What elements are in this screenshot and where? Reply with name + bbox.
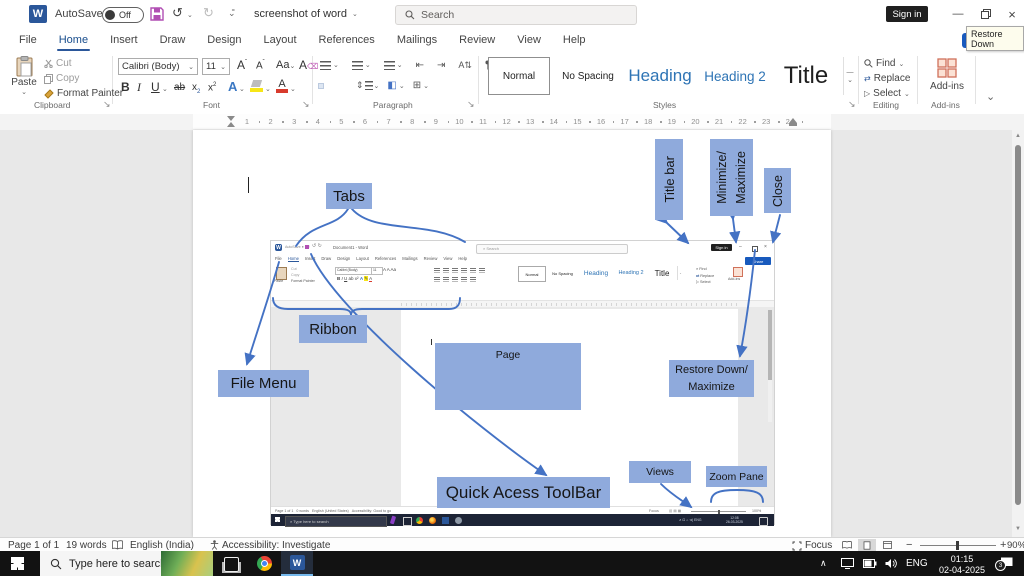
tab-help[interactable]: Help <box>552 30 597 52</box>
font-size-select[interactable]: 11⌄ <box>202 58 230 75</box>
addins-group-label: Add-ins <box>931 100 960 110</box>
indent-marker-right[interactable] <box>789 118 797 126</box>
scrollbar-thumb[interactable] <box>1015 145 1021 505</box>
taskbar-search-placeholder: Type here to search <box>69 558 166 570</box>
scroll-up-icon[interactable]: ▲ <box>1015 133 1021 139</box>
callout-title-bar[interactable]: Title bar <box>655 139 683 220</box>
notification-badge: 3 <box>995 560 1006 571</box>
word-count[interactable]: 19 words <box>66 540 107 551</box>
task-view-button[interactable] <box>224 557 239 572</box>
close-button[interactable]: × <box>1000 4 1024 24</box>
replace-icon: ⇄ <box>864 74 871 83</box>
tray-display-icon[interactable] <box>841 558 854 569</box>
mini-sign-in: Sign in <box>711 244 732 251</box>
mini-minimize-icon: – <box>739 244 742 250</box>
cut-button[interactable]: Cut <box>44 58 72 69</box>
highlight-chevron-icon[interactable]: ⌄ <box>265 85 271 93</box>
autosave-label: AutoSave <box>55 8 103 20</box>
tray-time: 01:15 <box>934 554 990 565</box>
sort-icon[interactable]: A⇅ <box>458 60 472 71</box>
tab-mailings[interactable]: Mailings <box>386 30 448 52</box>
format-painter-icon <box>44 89 54 99</box>
search-icon <box>405 10 415 20</box>
tray-chevron-icon[interactable]: ∧ <box>820 558 827 569</box>
font-color-chevron-icon[interactable]: ⌄ <box>290 85 296 93</box>
windows-taskbar: Type here to search W ∧ ENG 01:15 02-04-… <box>0 551 1024 576</box>
paste-button[interactable]: Paste ⌄ <box>8 56 40 100</box>
callout-quick-access[interactable]: Quick Acess ToolBar <box>437 477 610 508</box>
paragraph-row2: ⇕⌄ ◧⌄ ⊞⌄ <box>318 80 429 91</box>
underline-button[interactable]: U <box>151 80 160 94</box>
mini-tab-row: File Home InsertDraw DesignLayout Refere… <box>275 254 467 263</box>
font-family-select[interactable]: Calibri (Body)⌄ <box>118 58 198 75</box>
tab-layout[interactable]: Layout <box>253 30 308 52</box>
paragraph-row1: ⌄ ⌄ ⌄ ⇤ ⇥ A⇅ ¶ <box>320 59 491 71</box>
mini-taskbar: ⌕ Type here to search ∧ ⊡ ⌂ ⊲) ENG 12:08… <box>271 514 774 526</box>
document-area[interactable]: W AutoSave ● Off ↺ ↻ Document1 - Word ⌕ … <box>0 130 1024 537</box>
mini-doc-title: Document1 - Word <box>333 245 368 250</box>
title-chevron-icon[interactable]: ⌄ <box>352 10 358 18</box>
format-painter-button[interactable]: Format Painter <box>44 88 123 99</box>
subscript-button[interactable]: x2 <box>192 82 200 95</box>
redo-icon[interactable]: ↻ <box>203 5 214 21</box>
paragraph-group-label: Paragraph <box>373 100 413 110</box>
superscript-button[interactable]: x2 <box>208 82 216 93</box>
tab-insert[interactable]: Insert <box>99 30 149 52</box>
style-heading-2[interactable]: Heading 2 <box>700 57 770 95</box>
minimize-button[interactable]: — <box>944 4 972 24</box>
tab-draw[interactable]: Draw <box>149 30 197 52</box>
mini-close-icon: × <box>764 244 767 250</box>
mini-addins-icon <box>733 267 743 277</box>
toggle-knob <box>105 10 115 20</box>
callout-close[interactable]: Close <box>764 168 791 213</box>
shrink-font-icon[interactable]: Aˇ <box>256 60 265 71</box>
text-cursor <box>248 177 249 193</box>
proofing-book-icon[interactable] <box>112 540 123 550</box>
accessibility-icon <box>210 540 219 550</box>
decrease-indent-icon[interactable]: ⇤ <box>416 60 424 71</box>
title-bar: W AutoSave Off ↺ ⌄ ↻ ⌄̄ screenshot of wo… <box>0 0 1024 28</box>
mini-firefox-icon <box>429 517 436 524</box>
status-bar: Page 1 of 1 19 words English (India) Acc… <box>0 537 1024 552</box>
font-dialog-launcher-icon[interactable]: ↘ <box>302 99 310 110</box>
copy-icon <box>44 74 53 84</box>
tab-home[interactable]: Home <box>48 30 99 52</box>
callout-restore-down[interactable]: Restore Down/ Maximize <box>669 360 754 397</box>
chrome-icon[interactable] <box>257 556 272 571</box>
font-group-label: Font <box>203 100 220 110</box>
mini-gear-icon <box>455 517 462 524</box>
paste-icon <box>16 56 33 77</box>
mini-word-tile-icon <box>442 517 449 524</box>
document-title[interactable]: screenshot of word <box>254 8 347 20</box>
word-logo-icon: W <box>29 5 47 23</box>
word-taskbar-button[interactable]: W <box>281 551 313 576</box>
tray-battery-icon[interactable] <box>863 559 877 568</box>
mini-scrollbar <box>768 310 772 422</box>
editing-group-label: Editing <box>873 100 899 110</box>
accessibility-status[interactable]: Accessibility: Investigate <box>222 540 330 551</box>
align-left-icon[interactable] <box>318 83 324 89</box>
search-placeholder: Search <box>421 9 454 21</box>
search-input[interactable]: Search <box>395 5 637 25</box>
clipboard-dialog-launcher-icon[interactable]: ↘ <box>103 99 111 110</box>
taskbar-search-icon <box>50 558 62 570</box>
mini-undo-icon: ↺ ↻ <box>312 243 322 249</box>
mini-word-logo-icon: W <box>275 244 282 251</box>
find-button[interactable]: Find⌄ <box>864 58 904 69</box>
clear-formatting-icon[interactable]: A⌫ <box>299 58 318 72</box>
undo-icon[interactable]: ↺ <box>172 5 183 21</box>
tab-design[interactable]: Design <box>196 30 252 52</box>
styles-group-label: Styles <box>653 100 676 110</box>
collapse-ribbon-icon[interactable]: ⌄ <box>986 90 995 103</box>
text-effects-chevron-icon[interactable]: ⌄ <box>239 85 245 93</box>
web-layout-icon[interactable] <box>878 539 896 551</box>
increase-indent-icon[interactable]: ⇥ <box>437 60 445 71</box>
vertical-scrollbar[interactable]: ▲ ▼ <box>1012 130 1024 537</box>
customize-qat-icon[interactable]: ⌄̄ <box>228 8 236 19</box>
save-icon[interactable] <box>150 7 164 21</box>
tab-references[interactable]: References <box>308 30 386 52</box>
zoom-percentage[interactable]: 90% <box>1007 540 1024 551</box>
ruler-numbers: 123456789101112131415161718192021222324 <box>186 114 838 130</box>
callout-zoom-pane[interactable]: Zoom Pane <box>706 466 767 487</box>
find-icon <box>864 59 873 68</box>
add-ins-icon <box>937 58 957 78</box>
font-color-icon[interactable]: A <box>276 79 288 93</box>
change-case-icon[interactable]: Aa⌄ <box>276 59 295 71</box>
tray-volume-icon[interactable] <box>885 558 897 569</box>
start-button[interactable] <box>11 557 24 570</box>
ribbon-tab-row: File Home Insert Draw Design Layout Refe… <box>0 28 1024 52</box>
callout-ribbon[interactable]: Ribbon <box>299 315 367 343</box>
autosave-toggle[interactable]: Off <box>102 7 144 23</box>
focus-icon <box>792 541 802 551</box>
line-spacing-icon[interactable]: ⇕⌄ <box>356 80 379 91</box>
tab-view[interactable]: View <box>506 30 552 52</box>
mini-chrome-icon <box>416 517 423 524</box>
mini-ribbon-pin-icon <box>390 516 396 525</box>
sign-in-button[interactable]: Sign in <box>886 6 928 22</box>
highlight-color-icon[interactable] <box>250 80 263 93</box>
tab-review[interactable]: Review <box>448 30 506 52</box>
restore-icon <box>981 9 991 19</box>
text-effects-icon[interactable]: A <box>228 79 237 94</box>
mini-taskview-icon <box>403 517 412 526</box>
numbering-icon[interactable]: ⌄ <box>352 61 371 70</box>
cut-icon <box>44 59 53 68</box>
mini-taskbar-search: ⌕ Type here to search <box>285 516 387 527</box>
focus-button[interactable]: Focus <box>805 540 832 551</box>
bold-button[interactable]: B <box>121 80 130 94</box>
copy-button[interactable]: Copy <box>44 73 79 84</box>
callout-views[interactable]: Views <box>629 461 691 483</box>
style-normal[interactable]: Normal <box>488 57 550 95</box>
style-heading[interactable]: Heading <box>624 57 696 95</box>
select-button[interactable]: ▷ Select⌄ <box>864 88 910 99</box>
print-layout-icon[interactable] <box>858 539 876 551</box>
style-no-spacing[interactable]: No Spacing <box>556 57 620 95</box>
callout-page[interactable]: Page <box>435 343 581 410</box>
multilevel-list-icon[interactable]: ⌄ <box>384 61 403 70</box>
styles-dialog-launcher-icon[interactable]: ↘ <box>848 99 856 110</box>
tray-date: 02-04-2025 <box>934 565 990 576</box>
callout-file-menu[interactable]: File Menu <box>218 370 309 397</box>
style-title[interactable]: Title <box>772 57 840 95</box>
word-taskbar-icon: W <box>290 555 305 570</box>
paragraph-dialog-launcher-icon[interactable]: ↘ <box>467 99 475 110</box>
autosave-state: Off <box>119 10 131 20</box>
select-icon: ▷ <box>864 89 870 98</box>
ribbon: Paste ⌄ Cut Copy Format Painter Clipboar… <box>0 52 1024 115</box>
mini-notification-icon <box>759 517 768 526</box>
undo-chevron-icon[interactable]: ⌄ <box>187 11 193 19</box>
strikethrough-button[interactable]: ab <box>174 82 185 93</box>
tray-language[interactable]: ENG <box>906 558 928 569</box>
add-ins-button[interactable]: Add-ins <box>926 58 968 92</box>
restore-down-tooltip: Restore Down <box>966 26 1024 51</box>
language-indicator[interactable]: English (India) <box>130 540 194 551</box>
zoom-out-button[interactable]: − <box>906 539 912 551</box>
notification-center-button[interactable]: 3 <box>999 557 1013 569</box>
restore-down-button[interactable] <box>972 4 1000 24</box>
styles-more-button[interactable]: —⌄ <box>843 57 856 95</box>
indent-marker-left[interactable] <box>227 116 235 127</box>
taskbar-search-box[interactable]: Type here to search <box>40 551 213 576</box>
mini-search-box: ⌕ Search <box>476 244 628 254</box>
tab-file[interactable]: File <box>8 30 48 52</box>
italic-button[interactable]: I <box>137 80 141 95</box>
page-indicator[interactable]: Page 1 of 1 <box>8 540 59 551</box>
mini-save-icon <box>305 245 309 249</box>
mini-restore-icon <box>752 246 758 252</box>
mini-start-icon <box>275 517 280 522</box>
zoom-slider-thumb[interactable] <box>956 541 959 550</box>
ruler[interactable]: 123456789101112131415161718192021222324 <box>0 114 1024 131</box>
underline-chevron-icon[interactable]: ⌄ <box>162 85 168 93</box>
read-mode-icon[interactable] <box>838 539 856 551</box>
shading-icon[interactable]: ◧⌄ <box>387 80 404 91</box>
scroll-down-icon[interactable]: ▼ <box>1015 526 1021 532</box>
zoom-in-button[interactable]: + <box>1000 539 1006 551</box>
word-window: W AutoSave Off ↺ ⌄ ↻ ⌄̄ screenshot of wo… <box>0 0 1024 576</box>
mini-ribbon: Paste Cut Copy Format Painter Calibri (B… <box>271 264 774 301</box>
tray-clock[interactable]: 01:15 02-04-2025 <box>934 554 990 576</box>
bullets-icon[interactable]: ⌄ <box>320 61 339 70</box>
borders-icon[interactable]: ⊞⌄ <box>413 80 429 91</box>
replace-button[interactable]: ⇄ Replace <box>864 73 910 84</box>
callout-tabs[interactable]: Tabs <box>326 183 372 209</box>
mini-cursor <box>431 339 432 345</box>
search-highlight-image[interactable] <box>161 551 213 576</box>
grow-font-icon[interactable]: Aˆ <box>237 58 247 72</box>
callout-minimize-maximize[interactable]: Minimize/ Maximize <box>710 139 753 216</box>
clipboard-group-label: Clipboard <box>34 100 70 110</box>
